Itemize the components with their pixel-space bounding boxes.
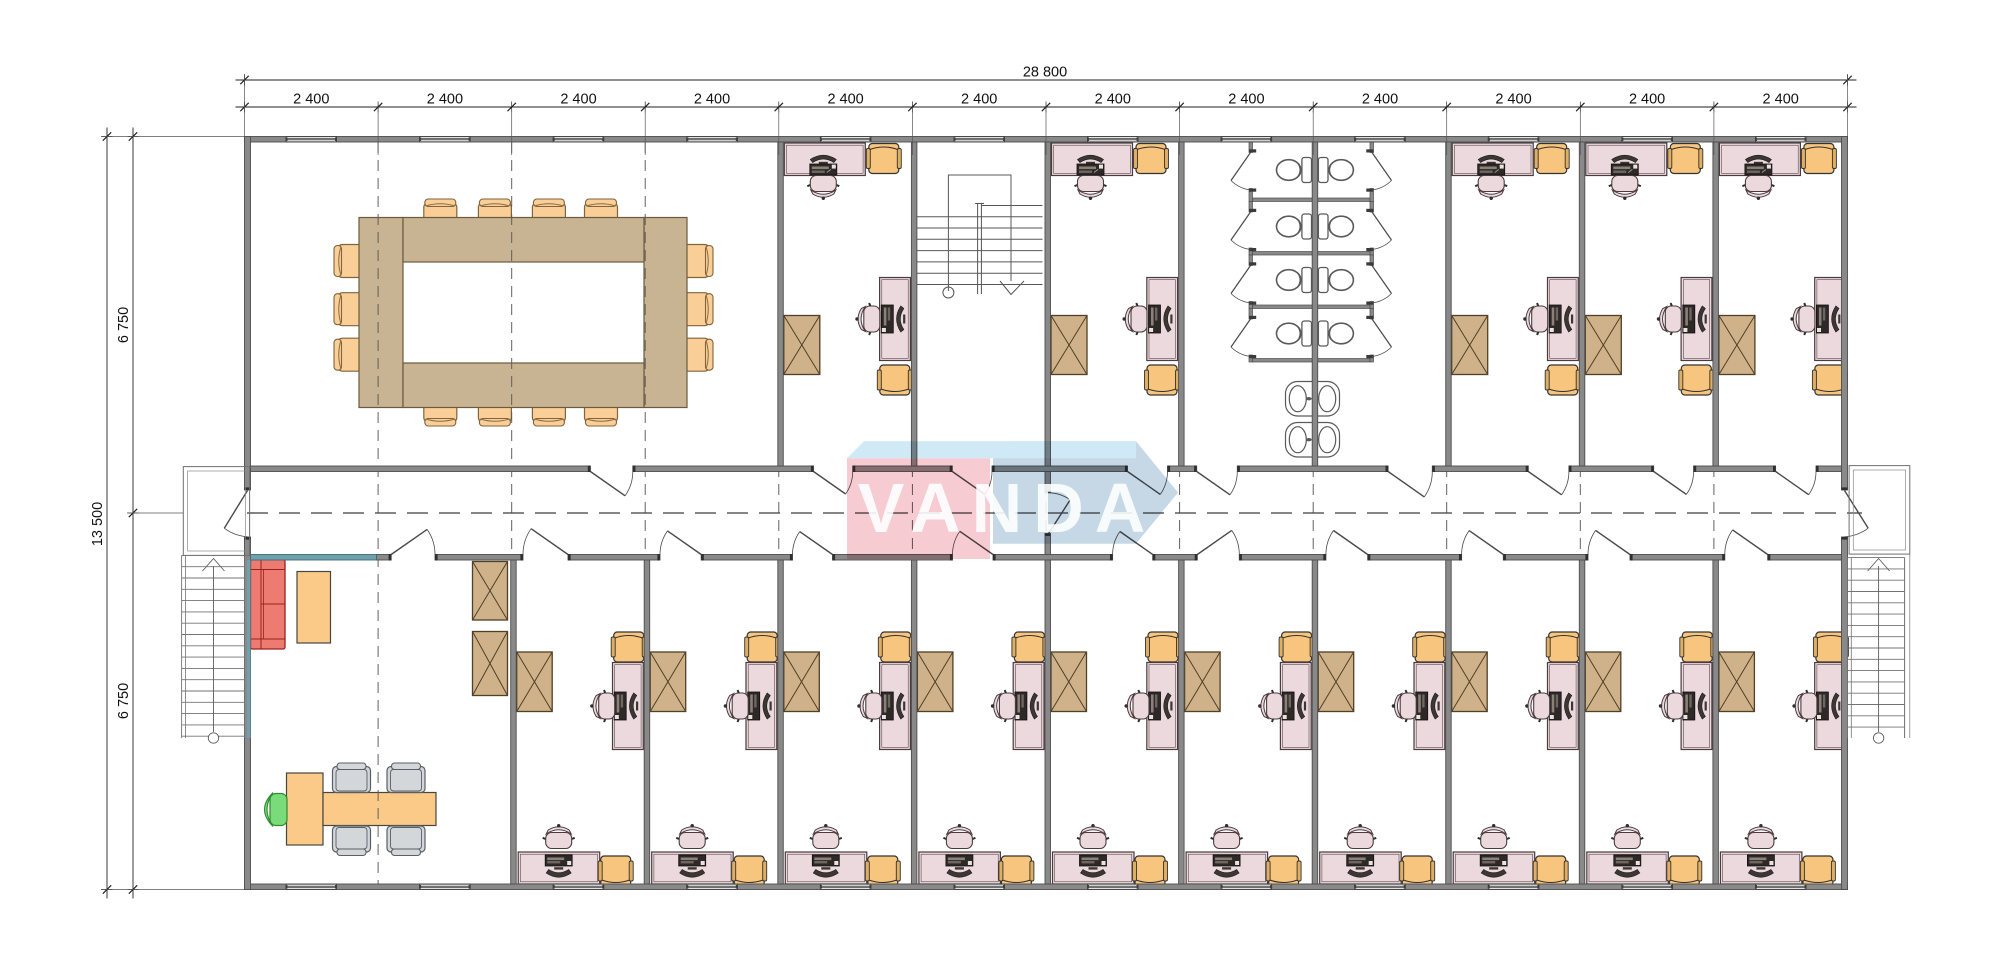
svg-text:2 400: 2 400 [694, 92, 730, 108]
svg-text:2 400: 2 400 [961, 92, 997, 108]
svg-text:2 400: 2 400 [1362, 92, 1398, 108]
svg-text:6 750: 6 750 [116, 307, 132, 343]
svg-text:2 400: 2 400 [293, 92, 329, 108]
svg-text:6 750: 6 750 [116, 683, 132, 719]
svg-text:2 400: 2 400 [1629, 92, 1665, 108]
svg-text:13 500: 13 500 [90, 502, 106, 546]
svg-text:28 800: 28 800 [1023, 65, 1067, 81]
svg-text:2 400: 2 400 [560, 92, 596, 108]
svg-text:2 400: 2 400 [1095, 92, 1131, 108]
svg-text:2 400: 2 400 [427, 92, 463, 108]
svg-text:2 400: 2 400 [827, 92, 863, 108]
svg-text:2 400: 2 400 [1228, 92, 1264, 108]
svg-text:2 400: 2 400 [1763, 92, 1799, 108]
svg-text:2 400: 2 400 [1495, 92, 1531, 108]
svg-text:VANDA: VANDA [858, 469, 1157, 547]
